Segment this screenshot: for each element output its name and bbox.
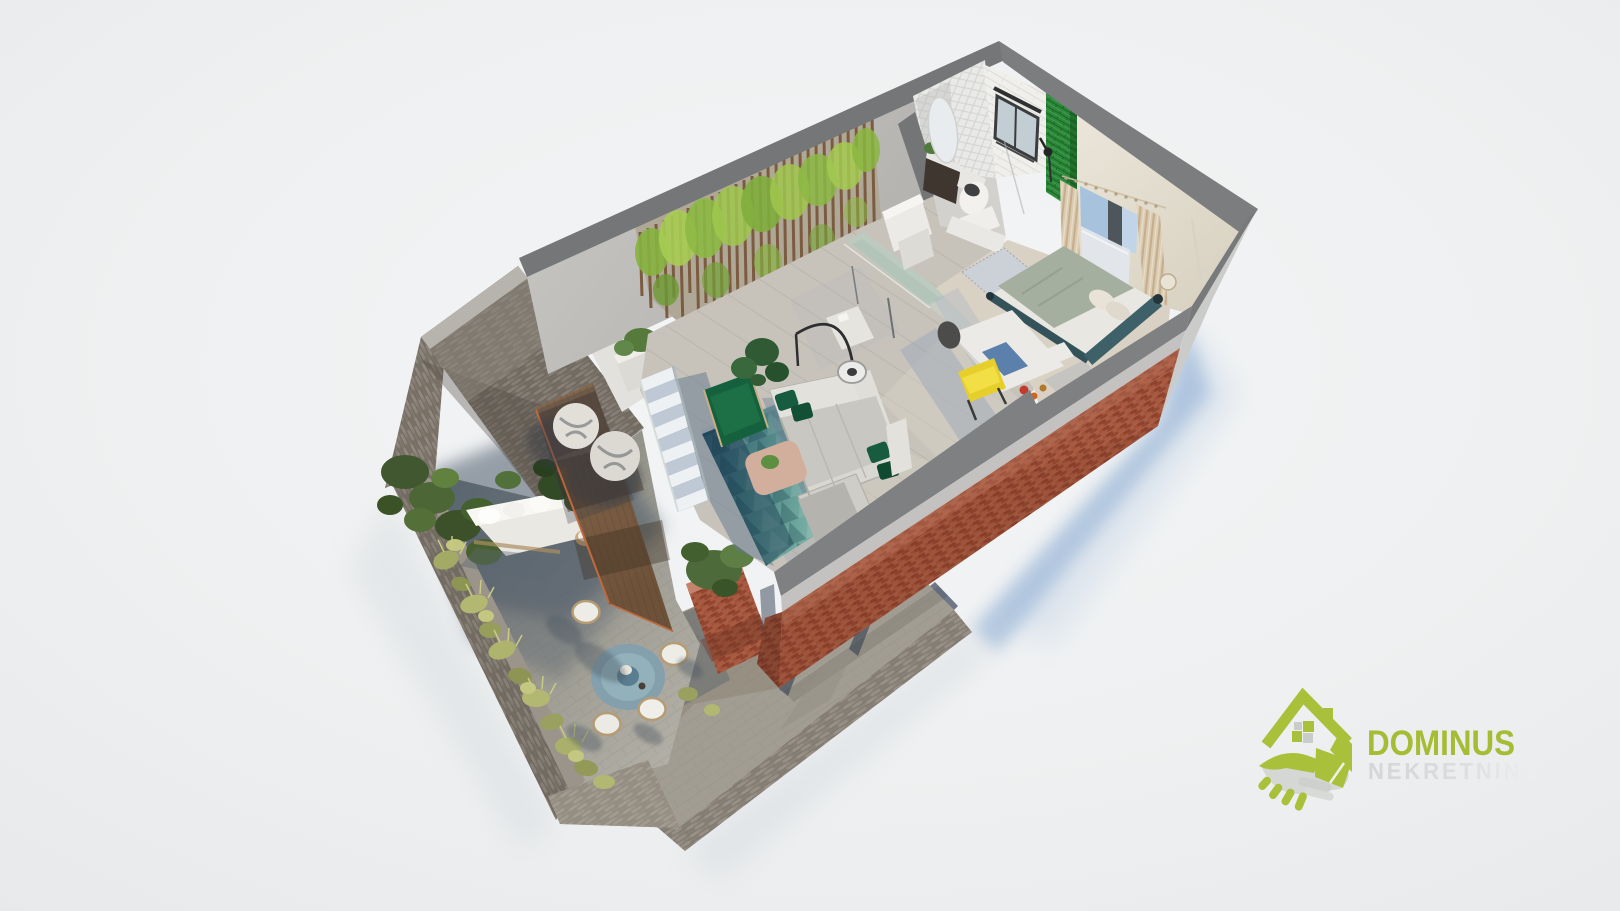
svg-text:NEKRETNINE: NEKRETNINE	[1368, 758, 1540, 784]
